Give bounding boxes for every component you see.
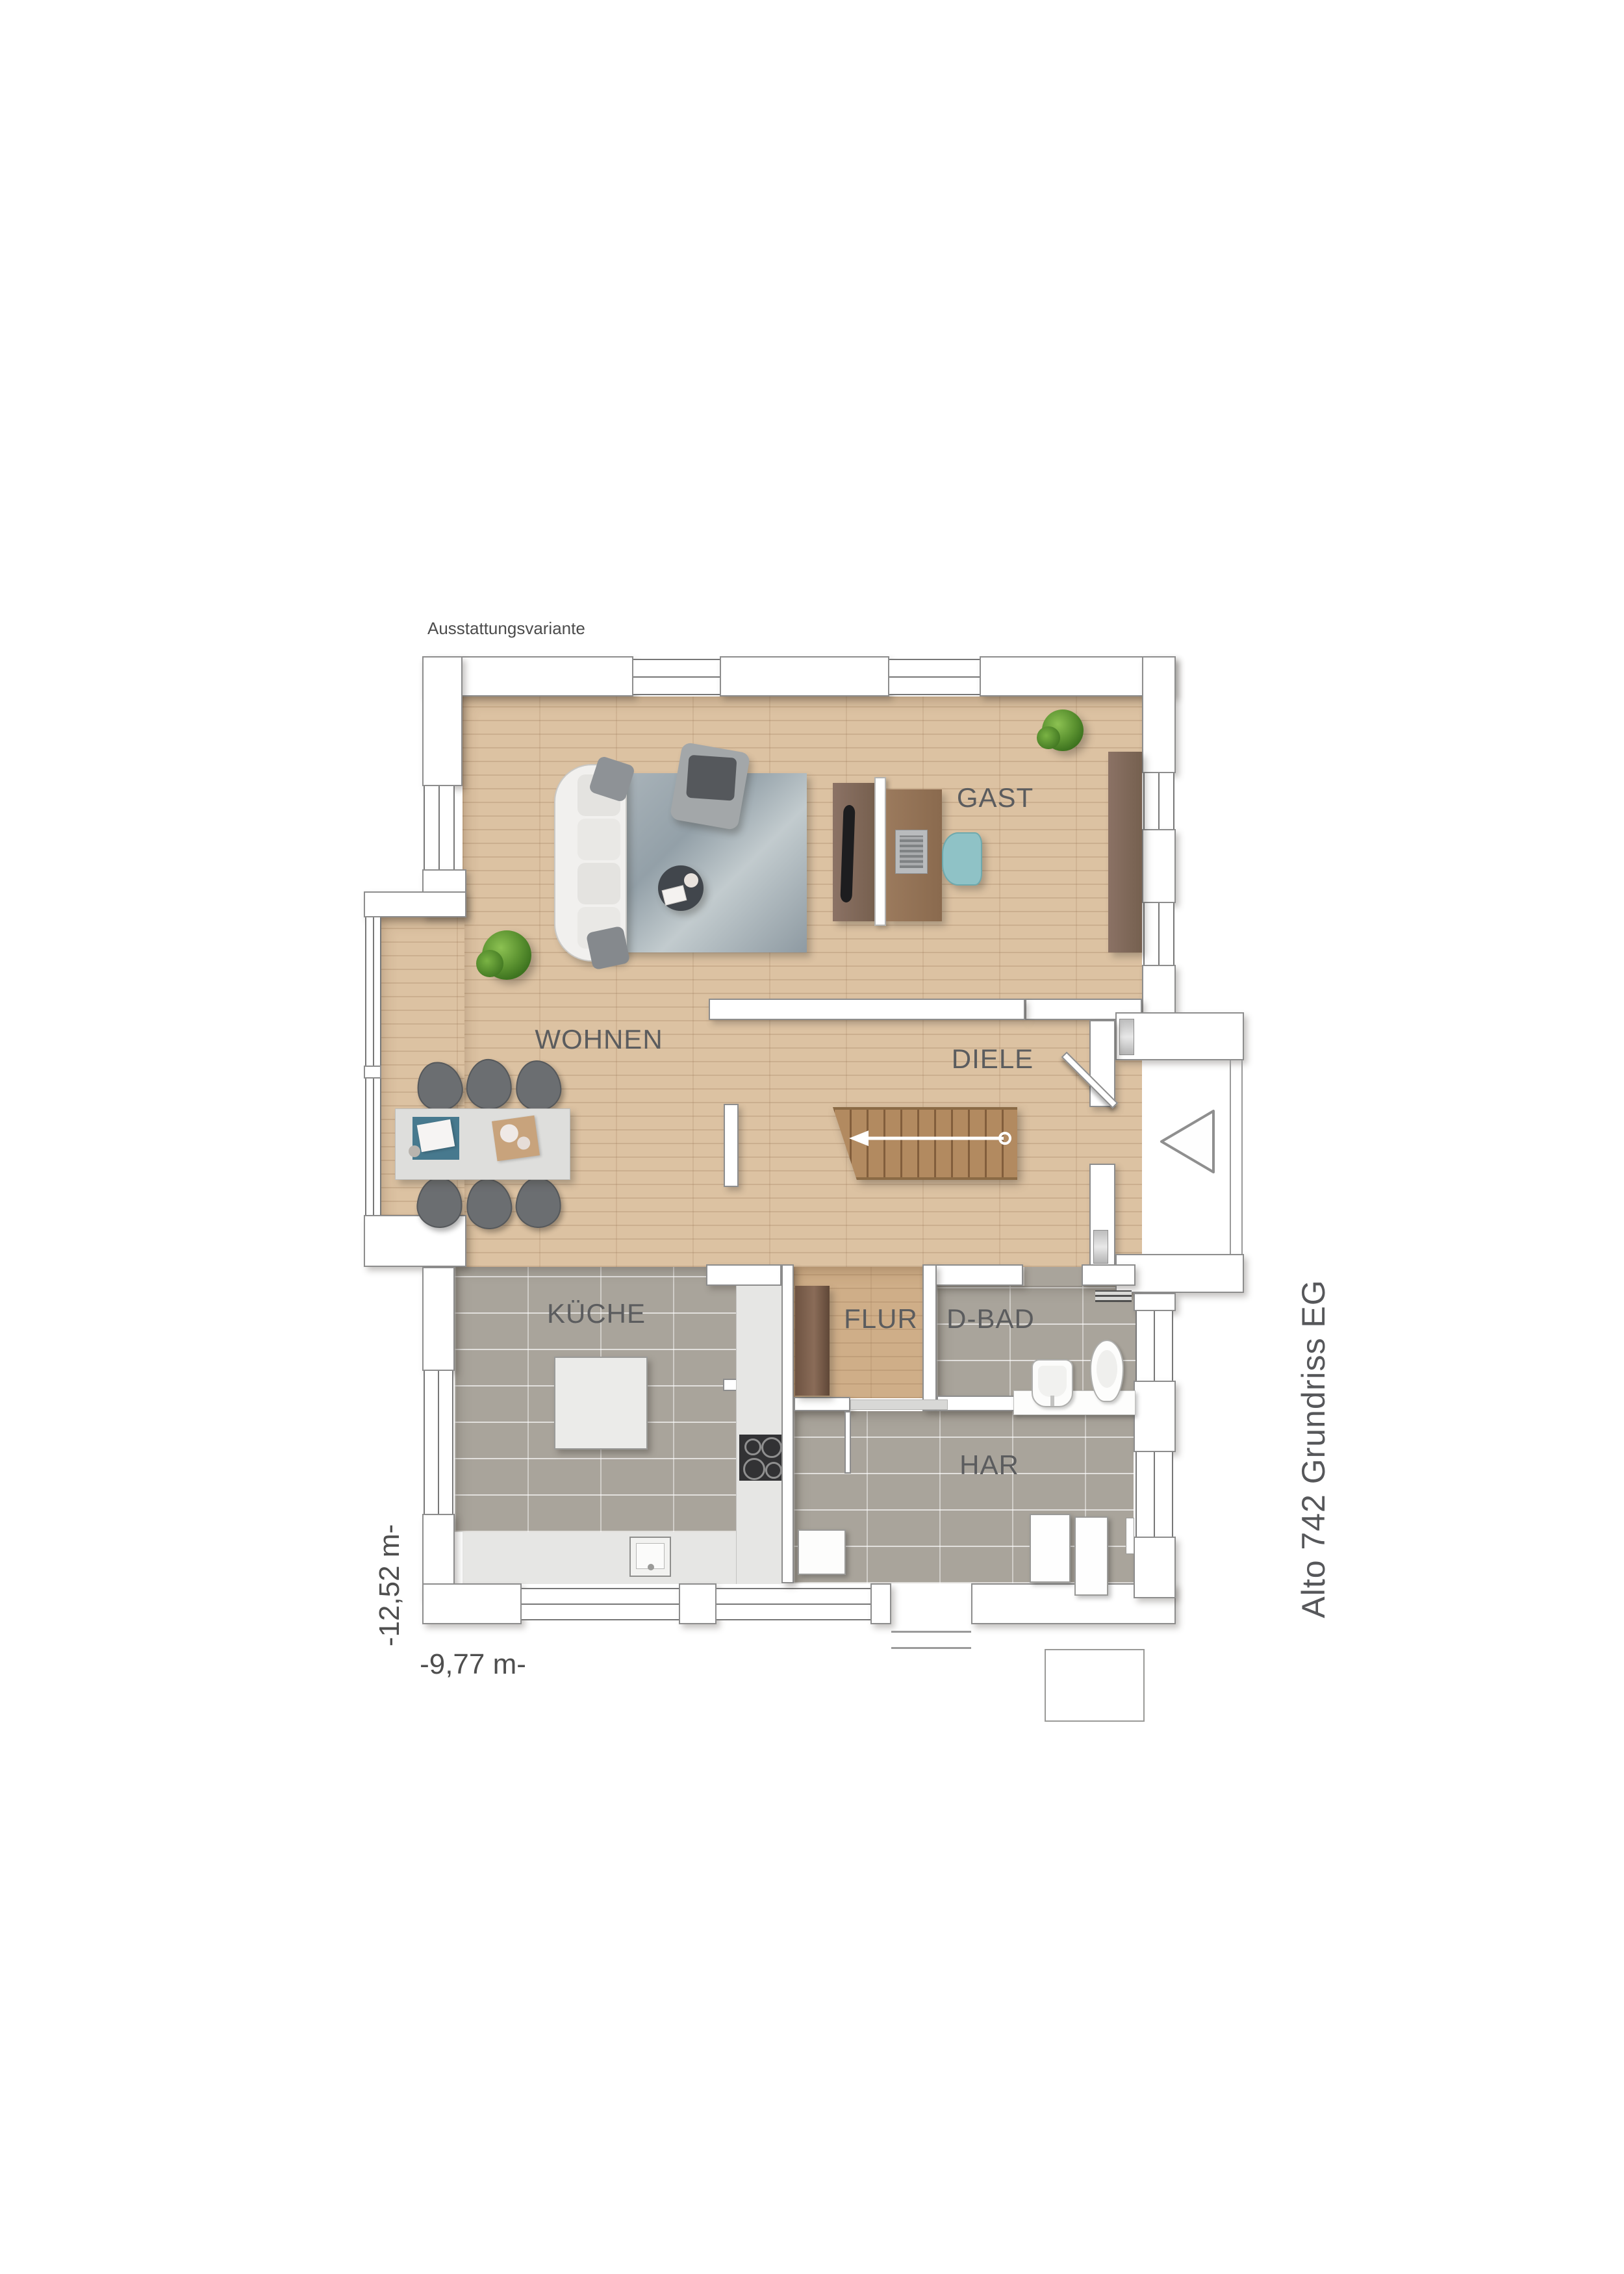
- har-door-threshold: [891, 1647, 971, 1649]
- exterior-wall: [1142, 656, 1176, 773]
- tv-sideboard: [833, 783, 874, 921]
- window: [1143, 773, 1174, 829]
- bay-window: [365, 917, 381, 1066]
- porch-wall: [1115, 1012, 1244, 1060]
- interior-wall-flur-dbad: [922, 1264, 937, 1411]
- exterior-wall: [422, 1583, 522, 1624]
- door-sidelight: [1093, 1230, 1108, 1264]
- gast-wardrobe: [1108, 752, 1142, 952]
- dimension-depth-label: -12,52 m-: [374, 1524, 406, 1646]
- flur-wardrobe: [795, 1286, 830, 1396]
- throw-pillow: [586, 926, 631, 971]
- interior-wall-dbad: [922, 1264, 1023, 1286]
- desk-chair: [942, 832, 982, 886]
- armchair: [669, 742, 750, 831]
- window: [633, 659, 720, 695]
- room-label-diele: DIELE: [952, 1043, 1034, 1075]
- interior-wall-wohnen-diele: [709, 999, 1025, 1020]
- exterior-pad: [1045, 1649, 1145, 1722]
- window: [424, 786, 455, 869]
- bay-window-mullion: [364, 1066, 381, 1079]
- washbasin: [1032, 1359, 1073, 1407]
- variant-label: Ausstattungsvariante: [427, 619, 585, 639]
- magazine: [662, 885, 687, 906]
- placemat: [412, 1117, 459, 1160]
- laptop: [895, 830, 928, 874]
- exterior-wall: [1134, 1381, 1176, 1452]
- window: [1143, 903, 1174, 965]
- har-appliance: [798, 1529, 846, 1575]
- plan-title: Alto 742 Grundriss EG: [1295, 1279, 1332, 1618]
- exterior-wall: [422, 1267, 455, 1371]
- flur-har-door-step: [850, 1399, 948, 1410]
- dbad-door-threshold: [1023, 1267, 1082, 1288]
- faucet: [648, 1564, 654, 1570]
- entrance-arrow-icon: [1156, 1106, 1221, 1177]
- room-label-gast: GAST: [957, 782, 1034, 813]
- window: [889, 659, 980, 695]
- kitchen-island: [554, 1357, 648, 1450]
- sofa: [554, 764, 627, 962]
- interior-wall-dbad: [1082, 1264, 1136, 1286]
- exterior-wall: [720, 656, 889, 696]
- door-sidelight: [1119, 1019, 1134, 1055]
- interior-wall-kueche: [706, 1264, 781, 1286]
- interior-wall-dbad-har: [937, 1396, 1015, 1411]
- window: [424, 1371, 453, 1514]
- room-label-flur: FLUR: [844, 1303, 918, 1335]
- room-label-kueche: KÜCHE: [547, 1298, 646, 1329]
- wall-mounted-unit: [1126, 1518, 1134, 1554]
- coffee-table: [658, 865, 704, 911]
- window: [717, 1588, 870, 1620]
- exterior-wall: [870, 1583, 891, 1624]
- toilet: [1090, 1340, 1124, 1402]
- exterior-wall: [1142, 829, 1176, 903]
- window: [522, 1588, 679, 1620]
- plant-icon: [1042, 709, 1084, 751]
- porch-edge-line: [1241, 1060, 1243, 1254]
- floorplan-page: Ausstattungsvariante: [0, 0, 1624, 2274]
- bay-wall: [364, 891, 466, 917]
- exterior-wall: [1134, 1537, 1176, 1598]
- exterior-wall: [422, 656, 463, 786]
- exterior-wall: [679, 1583, 717, 1624]
- room-label-har: HAR: [959, 1450, 1019, 1481]
- exterior-wall: [1134, 1293, 1176, 1311]
- har-door-leaf: [844, 1411, 851, 1474]
- interior-pillar: [724, 1104, 739, 1187]
- window: [1136, 1311, 1173, 1381]
- har-door-threshold: [891, 1631, 971, 1633]
- interior-wall-flur-har: [794, 1397, 850, 1411]
- window: [1136, 1452, 1173, 1537]
- porch-edge-line: [1230, 1060, 1231, 1254]
- bay-window: [365, 1079, 381, 1215]
- desk: [886, 789, 942, 921]
- dryer: [1074, 1516, 1108, 1596]
- dimension-width-label: -9,77 m-: [420, 1648, 526, 1681]
- interior-wall-kueche-flur: [781, 1264, 794, 1583]
- room-label-dbad: D-BAD: [946, 1303, 1035, 1335]
- room-label-wohnen: WOHNEN: [535, 1024, 663, 1055]
- dining-table: [395, 1108, 570, 1180]
- cooktop: [739, 1435, 781, 1481]
- towel-radiator: [1095, 1290, 1132, 1302]
- tv: [840, 805, 855, 903]
- kitchen-sink: [629, 1537, 671, 1577]
- serving-board: [492, 1116, 540, 1162]
- stair-direction-arrow-icon: [841, 1127, 1020, 1149]
- room-divider: [874, 777, 886, 926]
- washing-machine: [1030, 1514, 1071, 1583]
- plant-icon: [482, 930, 531, 980]
- kitchen-bottom-counter: [463, 1532, 781, 1584]
